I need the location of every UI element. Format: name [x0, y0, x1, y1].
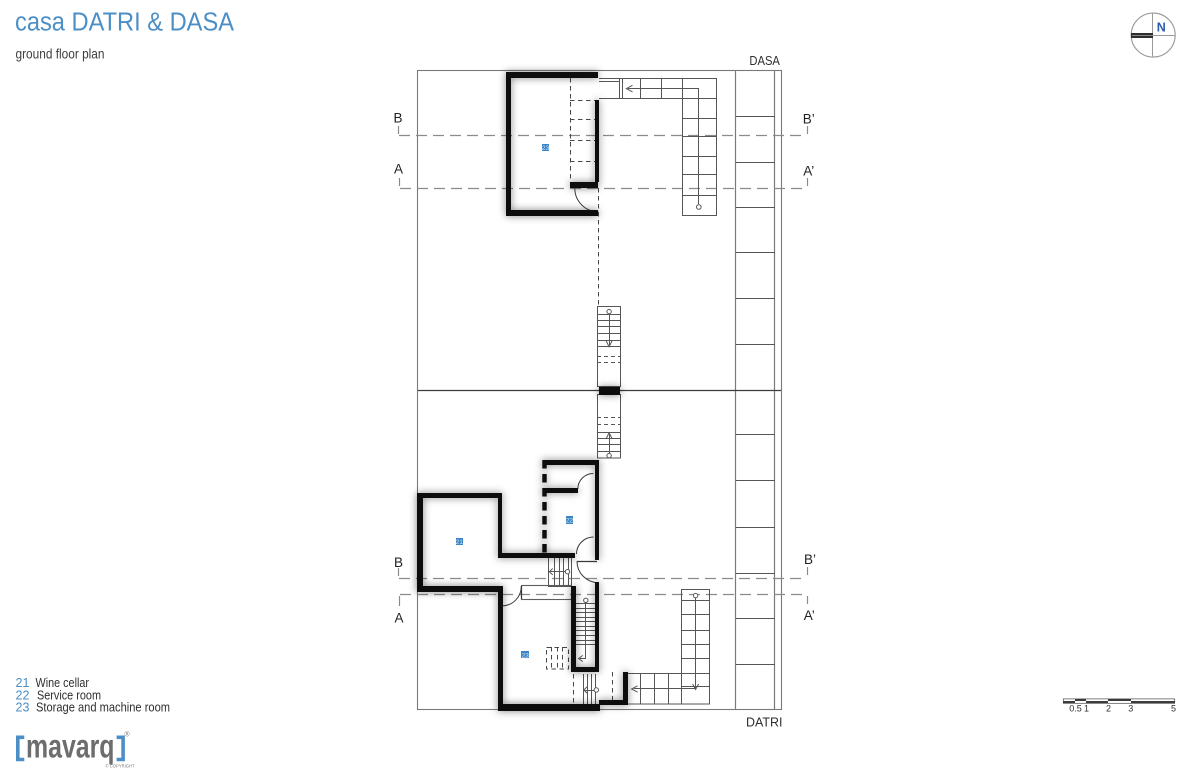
svg-text:21: 21	[456, 539, 464, 546]
svg-text:0.5: 0.5	[1069, 704, 1082, 714]
svg-text:23: 23	[522, 652, 530, 659]
svg-text:1: 1	[1084, 704, 1089, 714]
svg-text:casa DATRI & DASA: casa DATRI & DASA	[15, 9, 234, 37]
svg-text:B: B	[394, 555, 403, 570]
svg-text:A: A	[395, 611, 404, 626]
svg-text:5: 5	[1171, 704, 1176, 714]
svg-text:22: 22	[566, 517, 574, 524]
svg-text:Storage and machine room: Storage and machine room	[36, 701, 170, 715]
svg-text:ground floor plan: ground floor plan	[16, 46, 105, 62]
svg-text:B’: B’	[803, 112, 815, 127]
svg-text:A: A	[394, 162, 403, 177]
svg-text:N: N	[1157, 21, 1166, 35]
svg-text:®: ®	[125, 731, 131, 739]
svg-text:© COPYRIGHT: © COPYRIGHT	[106, 763, 136, 768]
svg-text:DATRI: DATRI	[746, 715, 783, 730]
svg-text:DASA: DASA	[749, 53, 780, 68]
svg-text:3: 3	[1128, 704, 1133, 714]
svg-text:23: 23	[16, 701, 30, 715]
svg-text:23: 23	[542, 145, 550, 152]
svg-text:mavarq: mavarq	[26, 728, 115, 765]
svg-text:A’: A’	[804, 608, 815, 623]
svg-text:B’: B’	[804, 552, 816, 567]
svg-text:B: B	[394, 111, 403, 126]
svg-text:2: 2	[1106, 704, 1111, 714]
svg-text:A’: A’	[803, 164, 814, 179]
